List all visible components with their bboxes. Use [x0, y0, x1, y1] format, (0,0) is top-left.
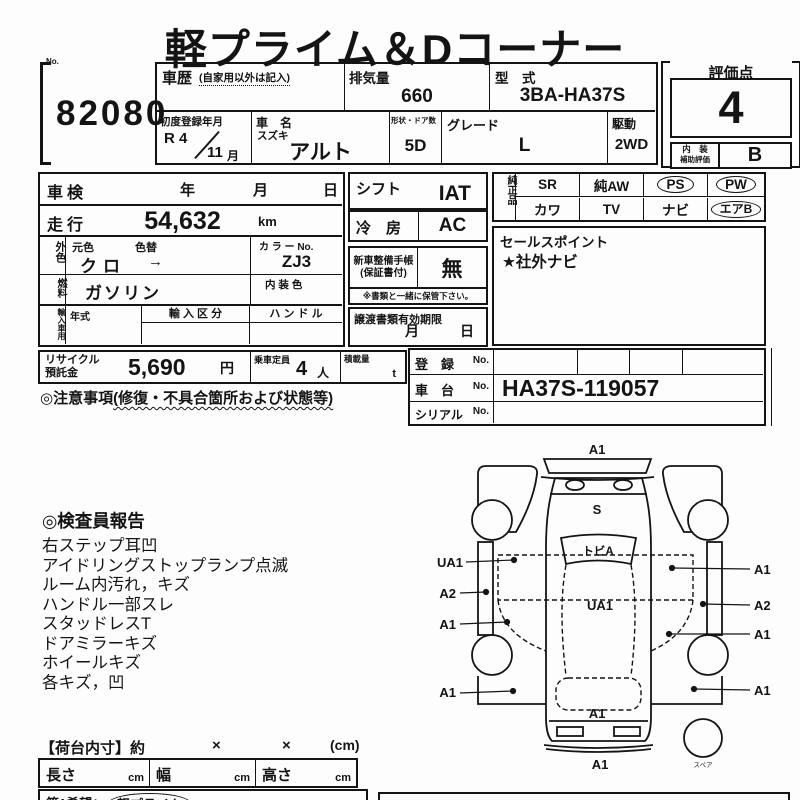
- mark-roof: UA1: [587, 598, 613, 613]
- ac-value-cell: AC: [418, 212, 486, 240]
- equipment-cell: SR: [516, 174, 579, 196]
- interior-score-value: B: [720, 144, 790, 167]
- row-mileage: 走行 54,632 km: [40, 204, 342, 235]
- booklet-value: 無: [442, 253, 463, 283]
- model-label: 型 式: [495, 67, 536, 87]
- damage-diagram: A1 S トビA UA1 UA1 A2 A1 A1 A1 A2 A1 A1 A1…: [420, 438, 785, 788]
- cell-model-code: 型 式 3BA-HA37S: [490, 64, 655, 110]
- recycle-box: リサイクル 預託金 5,690 円 乗車定員 4 人 積載量 t: [38, 350, 407, 384]
- reg-no-divider: [577, 350, 578, 374]
- bottom-right-box: [378, 792, 790, 800]
- equipment-item-ps: PS: [657, 176, 693, 193]
- equipment-cell: 純AW: [579, 174, 643, 196]
- chassis-label-cell: 車 台 No.: [410, 375, 494, 401]
- cell-body-doors: 形状・ドア数 5D: [390, 112, 442, 164]
- drive-label: 駆動: [612, 115, 636, 132]
- fuel-value: ガソリン: [85, 279, 161, 304]
- model-value: 3BA-HA37S: [490, 85, 655, 107]
- spare-tire-label: スペア: [693, 761, 713, 769]
- history-note: (自家用以外は記入): [199, 70, 290, 86]
- preference-box: 第1希望： 軽プライム: [38, 789, 368, 800]
- mileage-unit: km: [258, 214, 277, 229]
- cargo-times-2: ×: [282, 737, 291, 754]
- equipment-grid: 純正品 SR 純AW PS PW カワ TV ナビ エアB: [492, 172, 766, 222]
- equipment-cell: カワ: [516, 198, 579, 220]
- cargo-times-1: ×: [212, 737, 221, 754]
- registration-side-rule: [771, 348, 772, 426]
- equipment-cell: PW: [707, 174, 764, 196]
- shaken-year-char: 年: [180, 179, 195, 200]
- lot-bracket: [40, 62, 51, 165]
- mileage-label: 走行: [47, 211, 87, 235]
- booklet-label: 新車整備手帳 (保証書付): [350, 248, 418, 287]
- cell-load: 積載量 t: [340, 352, 404, 382]
- cell-year-model: 年式: [66, 306, 142, 344]
- row-color: 外色 元色 色替 クロ → カ ラ ー No. ZJ3: [40, 235, 342, 274]
- first-reg-era: R 4: [164, 130, 187, 147]
- recycle-value: 5,690: [128, 354, 186, 381]
- cell-car-name: 車 名 スズキ アルト: [252, 112, 390, 164]
- equipment-cell: PS: [643, 174, 707, 196]
- diagram-dashed-lines: [498, 555, 693, 710]
- mark-right-4: A1: [754, 683, 771, 698]
- inspector-item: ホイールキズ: [42, 654, 402, 674]
- shift-box: シフト IAT: [348, 172, 488, 210]
- row-serial-no: シリアル No.: [410, 401, 763, 423]
- spare-tire: [684, 719, 722, 757]
- cell-interior-color: 内 装 色: [250, 275, 342, 304]
- transfer-day: 日: [460, 321, 474, 341]
- row-fuel: 燃料 ガソリン 内 装 色: [40, 274, 342, 304]
- cell-history: 車歴 (自家用以外は記入): [157, 64, 345, 110]
- inspector-item: ハンドル一部スレ: [42, 596, 402, 616]
- cell-first-registration: 初度登録年月 R 4 11 月: [157, 112, 252, 164]
- reg-no-divider: [682, 350, 683, 374]
- drive-value: 2WD: [608, 136, 655, 153]
- shaken-label: 車検: [47, 179, 87, 203]
- lot-number: 82080: [56, 94, 168, 134]
- history-label: 車歴: [162, 67, 192, 88]
- row-chassis-no: 車 台 No. HA37S-119057: [410, 374, 763, 401]
- equipment-item-kawa: カワ: [534, 199, 561, 219]
- inspector-item: 右ステップ耳凹: [42, 537, 402, 557]
- header-row2: 初度登録年月 R 4 11 月 車 名 スズキ アルト 形状・ドア数 5D グレ…: [157, 110, 655, 162]
- booklet-value-cell: 無: [418, 248, 486, 287]
- inspector-title: ◎検査員報告: [42, 508, 402, 533]
- chassis-value: HA37S-119057: [502, 375, 659, 402]
- shaken-month-char: 月: [253, 179, 268, 200]
- recycle-label: リサイクル 預託金: [45, 353, 99, 380]
- cargo-unit: (cm): [330, 737, 360, 753]
- cargo-cell-length: 長さ cm: [40, 760, 150, 786]
- header-table: 車歴 (自家用以外は記入) 排気量 660 型 式 3BA-HA37S 初度登録…: [155, 62, 658, 165]
- score-value: 4: [718, 82, 743, 134]
- shift-label: シフト: [356, 178, 401, 199]
- transfer-label: 譲渡書類有効期限: [354, 311, 442, 327]
- equipment-item-pw: PW: [716, 176, 756, 193]
- handle-label: ハ ン ド ル: [250, 306, 342, 323]
- reg-no-divider: [629, 350, 630, 374]
- cell-drive: 駆動 2WD: [608, 112, 655, 164]
- ac-value: AC: [439, 215, 466, 237]
- notes-heading-paren: (修復・不具合箇所および状態等): [113, 390, 333, 407]
- capacity-unit: 人: [317, 364, 329, 381]
- color-change-arrow: →: [148, 253, 163, 270]
- cell-displacement: 排気量 660: [345, 64, 490, 110]
- row-reg-no: 登 録 No.: [410, 350, 763, 374]
- booklet-note-strip: ※書類と一緒に保管下さい。: [348, 289, 488, 305]
- ac-box: 冷 房 AC: [348, 210, 488, 242]
- mark-right-1: A1: [754, 562, 771, 577]
- transfer-box: 譲渡書類有効期限 月 日: [348, 307, 488, 347]
- mark-left-3: A1: [439, 617, 456, 632]
- mark-tailgate: A1: [589, 706, 606, 721]
- cargo-cell-height: 高さ cm: [256, 760, 356, 786]
- row-shaken: 車検 年 月 日: [40, 174, 342, 204]
- grade-label: グレード: [447, 115, 499, 134]
- body-doors-label: 形状・ドア数: [391, 115, 436, 126]
- fuel-label: 燃料: [40, 275, 66, 304]
- load-unit: t: [392, 368, 396, 380]
- equipment-cell: TV: [579, 198, 643, 220]
- reg-no-label-cell: 登 録 No.: [410, 350, 494, 374]
- equipment-group-label: 純正品: [494, 174, 516, 220]
- mark-right-2: A2: [754, 598, 771, 613]
- notes-heading: ◎注意事項(修復・不具合箇所および状態等): [40, 387, 333, 408]
- grade-value: L: [442, 135, 607, 157]
- equipment-item-airbag: エアB: [711, 201, 762, 218]
- sales-point-label: セールスポイント: [500, 231, 608, 251]
- shift-value: IAT: [439, 182, 471, 206]
- preference-value: 軽プライム: [108, 793, 191, 800]
- equipment-item-tv: TV: [603, 202, 620, 217]
- equipment-row-1: SR 純AW PS PW: [516, 174, 764, 197]
- import-label: 輸入車用: [40, 306, 66, 344]
- color-no-label: カ ラ ー No.: [259, 238, 313, 253]
- body-doors-value: 5D: [390, 136, 441, 156]
- cargo-cell-width: 幅 cm: [150, 760, 256, 786]
- cargo-table: 長さ cm 幅 cm 高さ cm: [38, 758, 358, 788]
- first-reg-month: 11: [207, 144, 223, 161]
- booklet-note: ※書類と一緒に保管下さい。: [363, 290, 473, 302]
- lot-no-label: No.: [46, 57, 59, 66]
- auction-sheet: 軽プライム＆Dコーナー No. 82080 車歴 (自家用以外は記入) 排気量 …: [0, 0, 800, 800]
- mark-left-1: UA1: [437, 555, 463, 570]
- inspector-item: アイドリングストップランプ点滅: [42, 557, 402, 577]
- cell-color-no: カ ラ ー No. ZJ3: [250, 237, 342, 274]
- year-model-label: 年式: [70, 308, 90, 323]
- mark-left-4: A1: [439, 685, 456, 700]
- first-reg-month-unit: 月: [227, 147, 239, 164]
- displacement-value: 660: [345, 86, 489, 108]
- inspector-item: 各キズ，凹: [42, 674, 402, 694]
- equipment-item-navi: ナビ: [662, 199, 689, 219]
- cell-capacity: 乗車定員 4 人: [250, 352, 340, 382]
- sales-point-value: ★社外ナビ: [502, 250, 578, 272]
- preference-label: 第1希望：: [46, 793, 105, 800]
- ac-label: 冷 房: [356, 217, 401, 238]
- equipment-cell: エアB: [707, 198, 764, 220]
- color-no-value: ZJ3: [251, 252, 342, 272]
- mileage-value: 54,632: [115, 207, 250, 236]
- interior-score-label: 内 装 補助評価: [672, 144, 720, 167]
- cell-handle: ハ ン ド ル: [250, 306, 342, 344]
- equipment-item-aw: 純AW: [594, 175, 629, 195]
- first-reg-label: 初度登録年月: [160, 114, 223, 129]
- row-import: 輸入車用 年式 輸 入 区 分 ハ ン ド ル: [40, 304, 342, 344]
- mark-right-3: A1: [754, 627, 771, 642]
- recycle-unit: 円: [220, 358, 234, 378]
- registration-table: 登 録 No. 車 台 No. HA37S-119057 シリアル No.: [408, 348, 766, 426]
- interior-color-label: 内 装 色: [265, 277, 302, 292]
- mark-front-bumper: A1: [589, 442, 606, 457]
- transfer-month: 月: [405, 321, 419, 341]
- booklet-box: 新車整備手帳 (保証書付) 無: [348, 246, 488, 289]
- mark-hood: S: [593, 502, 602, 517]
- load-label: 積載量: [344, 353, 370, 365]
- shaken-day-char: 日: [323, 179, 338, 200]
- serial-label-cell: シリアル No.: [410, 402, 494, 423]
- mark-rear-bumper: A1: [592, 757, 609, 772]
- inspector-item: ルーム内汚れ，キズ: [42, 576, 402, 596]
- interior-score-row: 内 装 補助評価 B: [670, 142, 792, 169]
- equipment-row-2: カワ TV ナビ エアB: [516, 198, 764, 220]
- sales-point-box: セールスポイント ★社外ナビ: [492, 226, 766, 346]
- cell-grade: グレード L: [442, 112, 608, 164]
- equipment-item-sr: SR: [538, 177, 557, 192]
- capacity-value: 4: [296, 358, 307, 381]
- cargo-title: 【荷台内寸】約: [40, 737, 145, 758]
- score-box: 4: [670, 78, 792, 138]
- inspector-item: スタッドレスT: [42, 615, 402, 635]
- inspector-report: ◎検査員報告 右ステップ耳凹 アイドリングストップランプ点滅 ルーム内汚れ，キズ…: [42, 508, 402, 693]
- equipment-cell: ナビ: [643, 198, 707, 220]
- mark-windshield: トビA: [582, 544, 613, 558]
- cell-import-class: 輸 入 区 分: [142, 306, 250, 344]
- car-name-value: アルト: [252, 136, 389, 166]
- inspector-item: ドアミラーキズ: [42, 635, 402, 655]
- displacement-label: 排気量: [349, 67, 390, 87]
- ext-color-label: 外色: [40, 237, 66, 274]
- import-class-label: 輸 入 区 分: [142, 306, 249, 323]
- mark-left-2: A2: [439, 586, 456, 601]
- vehicle-info-table: 車検 年 月 日 走行 54,632 km 外色 元色 色替 クロ → カ ラ …: [38, 172, 345, 347]
- capacity-label: 乗車定員: [254, 353, 290, 366]
